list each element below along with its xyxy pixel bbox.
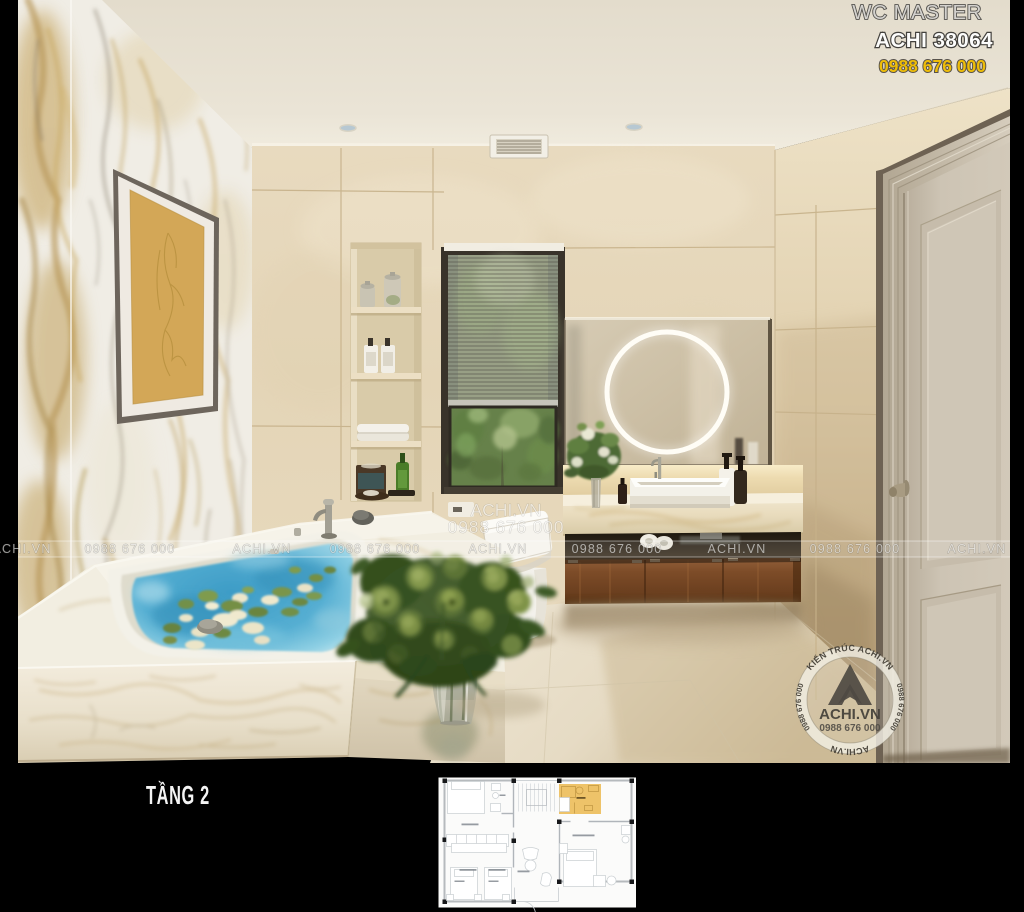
- svg-text:TẦNG 2: TẦNG 2: [146, 780, 210, 810]
- svg-text:0988 676 000: 0988 676 000: [85, 542, 176, 556]
- svg-text:0988 676 000: 0988 676 000: [330, 542, 421, 556]
- svg-text:0988 676 000: 0988 676 000: [819, 723, 881, 734]
- svg-text:ACHI.VN: ACHI.VN: [0, 542, 52, 556]
- svg-text:ACHI.VN: ACHI.VN: [947, 542, 1006, 556]
- svg-text:ACHI.VN: ACHI.VN: [819, 706, 881, 723]
- svg-text:0988 676 000: 0988 676 000: [879, 56, 986, 76]
- svg-text:ACHI 38064: ACHI 38064: [875, 29, 993, 52]
- svg-text:WC MASTER: WC MASTER: [852, 1, 982, 24]
- svg-text:0988 676 000: 0988 676 000: [448, 517, 565, 537]
- svg-text:ACHI.VN: ACHI.VN: [232, 542, 291, 556]
- svg-text:0988 676 000: 0988 676 000: [810, 542, 901, 556]
- svg-text:ACHI.VN: ACHI.VN: [468, 542, 527, 556]
- svg-text:ACHI.VN: ACHI.VN: [707, 542, 766, 556]
- svg-text:0988 676 000: 0988 676 000: [572, 542, 663, 556]
